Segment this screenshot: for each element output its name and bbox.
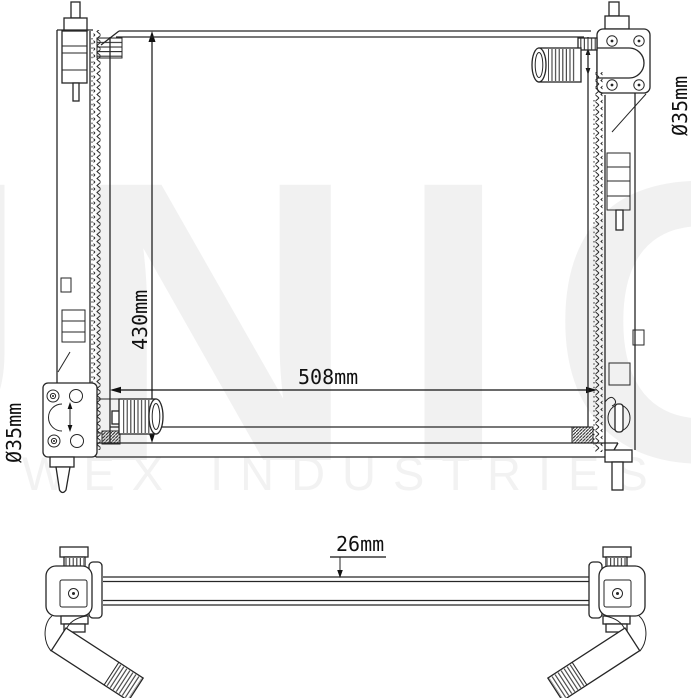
mounting-pin-bottom-right xyxy=(612,462,623,490)
dimension-height: 430mm xyxy=(128,31,156,443)
drawing-canvas: 430mm 508mm Ø35mm Ø35mm xyxy=(0,0,691,698)
outlet-diameter-label: Ø35mm xyxy=(2,403,26,463)
angled-hose-connector xyxy=(51,628,143,698)
bottom-view-tank-left xyxy=(45,547,143,698)
thickness-label: 26mm xyxy=(336,532,384,556)
tank-clip-left xyxy=(61,278,71,292)
radiator-drawing: UNIC WEX INDUSTRIES 430mm xyxy=(0,0,691,698)
inlet-assembly xyxy=(532,2,650,93)
radiator-front-view xyxy=(43,2,650,493)
dimension-thickness: 26mm xyxy=(330,532,386,578)
tank-block-left xyxy=(62,310,85,342)
radiator-bottom-view: 26mm xyxy=(45,532,646,698)
right-side-tank xyxy=(605,93,644,490)
dim-width-label: 508mm xyxy=(298,365,358,389)
inlet-diameter-label: Ø35mm xyxy=(668,76,691,136)
dimension-width: 508mm xyxy=(110,365,597,393)
drain-plug xyxy=(605,397,630,432)
hose-neck-cap xyxy=(60,547,88,557)
outlet-assembly xyxy=(43,383,163,493)
outlet-pin-collar xyxy=(50,457,74,467)
core-end-section-top-left xyxy=(97,38,122,58)
bottom-tank xyxy=(88,443,618,457)
mounting-pin-top-right xyxy=(609,2,619,16)
bottom-view-core xyxy=(103,577,592,605)
bottom-view-tank-right xyxy=(548,547,646,698)
mounting-pin-bottom-left xyxy=(56,467,70,493)
mounting-pin-top-left xyxy=(62,2,87,101)
dim-height-label: 430mm xyxy=(128,290,152,350)
outlet-thread xyxy=(102,431,120,444)
core-end-section-bottom-right xyxy=(572,427,593,443)
dimension-outlet: Ø35mm xyxy=(2,403,26,463)
seam-right xyxy=(594,72,603,452)
